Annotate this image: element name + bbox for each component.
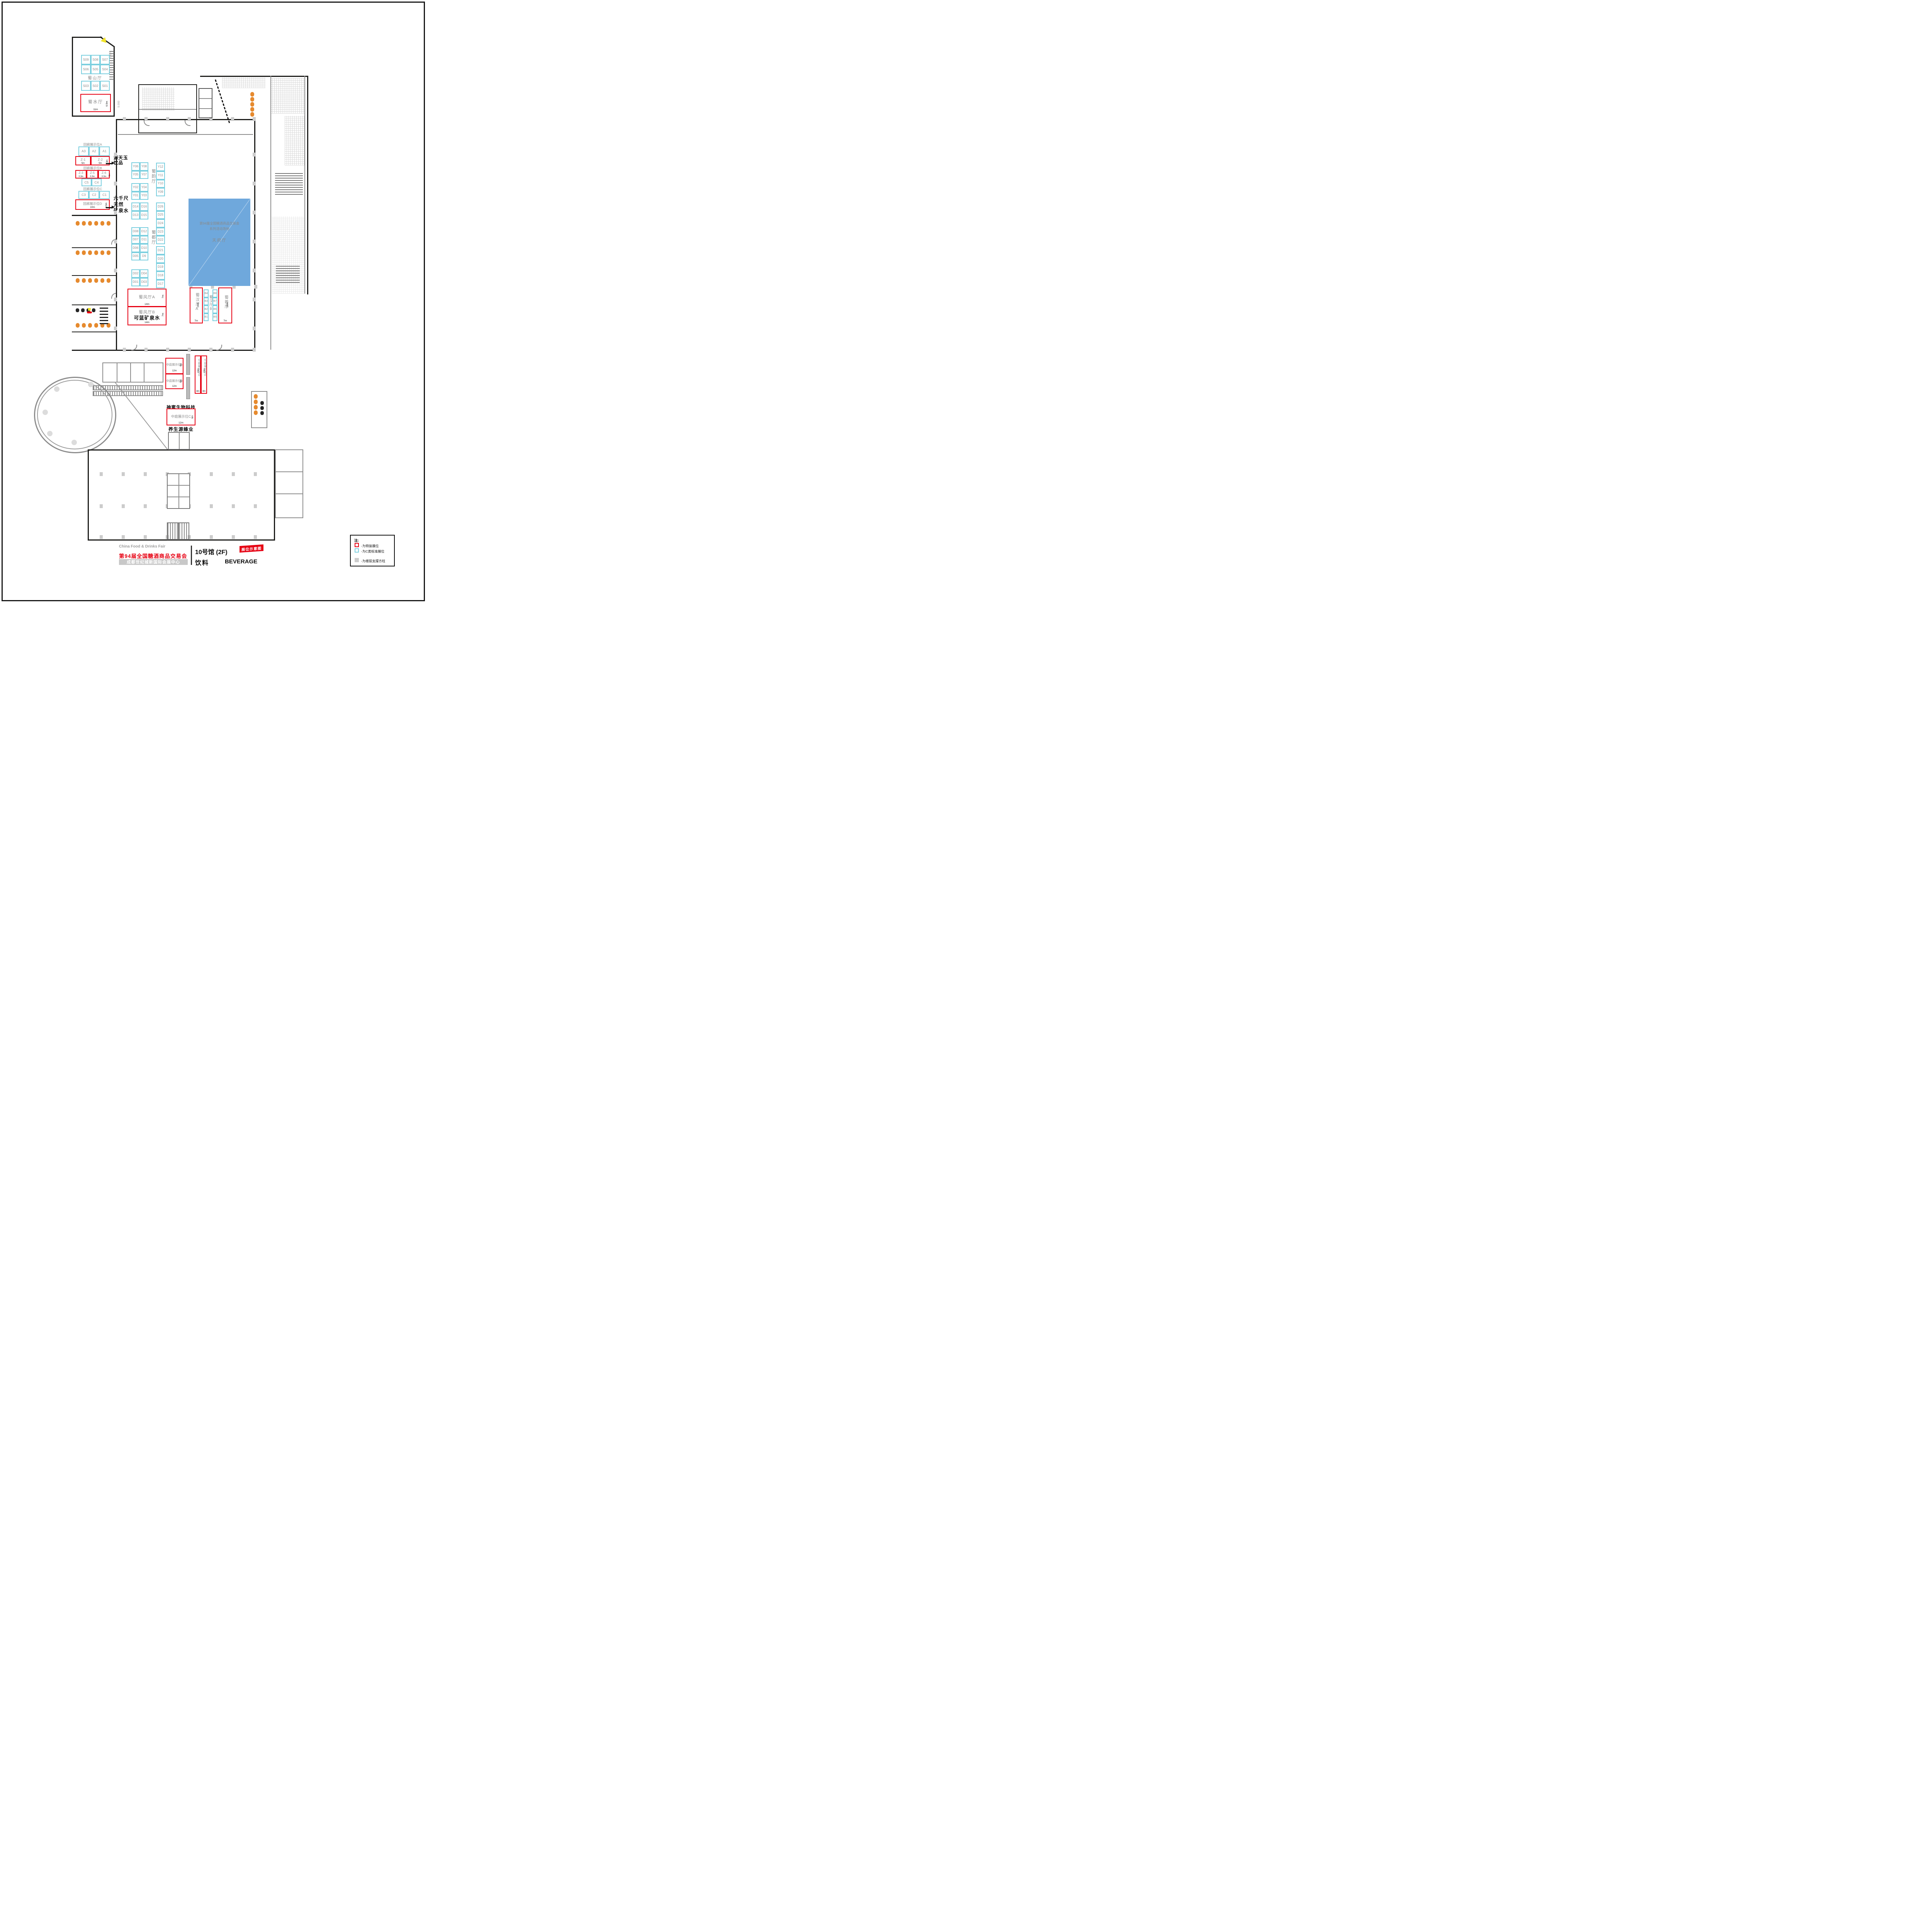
hall-corridor-line — [118, 134, 253, 135]
room-divider — [117, 363, 117, 382]
booth-S01[interactable]: S01 — [100, 81, 110, 91]
booth-B1[interactable]: B1 — [204, 313, 209, 321]
booth-D20[interactable]: D20 — [156, 255, 165, 263]
booth-D25[interactable]: D25 — [156, 211, 165, 219]
corridor-wall — [304, 76, 305, 294]
atrium-b-height: 6m — [180, 378, 182, 384]
shufeng-a-width: 14m — [128, 303, 166, 306]
fixture-icon — [88, 250, 92, 255]
z3-label: Z-3 — [76, 171, 86, 175]
arrow-icon — [106, 207, 112, 208]
fixture-icon — [100, 250, 104, 255]
booth-Z-3[interactable]: Z-3 3.3m — [75, 170, 87, 179]
fixture-icon — [94, 278, 98, 283]
corridor-rooms — [102, 362, 163, 383]
booth-shuhan-a[interactable]: 蜀汉厅A 7m 14m — [190, 287, 203, 323]
column-circle — [88, 382, 93, 387]
fixture-icon — [88, 323, 92, 328]
fixture-icon — [250, 92, 254, 97]
support-pillar-icon — [144, 472, 147, 476]
hall-wall-bottom — [72, 350, 255, 351]
booth-C5[interactable]: C5 — [82, 179, 92, 186]
venue-name: 成都世纪城新国际会展中心 — [127, 559, 180, 565]
skylight-grid — [285, 116, 305, 165]
booth-Y02[interactable]: Y02 — [131, 183, 140, 192]
corridor-d-width: 10m — [76, 206, 109, 209]
booth-D24[interactable]: D24 — [156, 219, 165, 228]
corridor-wall — [270, 76, 271, 350]
annex-rooms — [275, 449, 303, 518]
fixture-icon — [250, 97, 254, 102]
room-divider — [130, 363, 131, 382]
fixture-icon — [250, 107, 254, 112]
shuyun-booths-b: Y02Y04Y01Y03 — [131, 183, 148, 200]
fixture-icon — [260, 406, 264, 410]
booth-shufeng[interactable]: 蜀风厅A 14m 7m 蜀风厅B 可蓝矿泉水 14m 7m — [127, 289, 166, 325]
partition-stack — [100, 308, 108, 326]
shudu-booths-colbottom: D21D20D19D18D17 — [156, 246, 165, 288]
core-line — [199, 98, 212, 99]
support-pillar-icon — [114, 298, 117, 301]
booth-D22[interactable]: D22 — [156, 236, 165, 244]
booth-D10[interactable]: D10 — [140, 244, 148, 252]
fixture-icon — [100, 278, 104, 283]
z6-label: Z-6 — [99, 171, 109, 175]
booth-C1[interactable]: C1 — [99, 191, 110, 199]
support-pillar-icon — [231, 348, 234, 352]
fixture-icon — [250, 102, 254, 107]
tianfu-line2: 系列活动场地 — [189, 226, 250, 231]
fixture-icon — [82, 278, 86, 283]
booth-B2[interactable]: B2 — [204, 305, 209, 313]
booth-Y07[interactable]: Y07 — [140, 171, 148, 179]
shuyun-booths-a: Y06Y08Y05Y07 — [131, 162, 148, 179]
booth-D9[interactable]: D9 — [140, 252, 148, 261]
fixture-icon — [76, 221, 80, 226]
support-pillar-icon — [210, 535, 213, 539]
wall — [72, 275, 116, 276]
booth-C3[interactable]: C3 — [78, 191, 89, 199]
booth-B4[interactable]: B4 — [204, 289, 209, 298]
booth-shushui-hall[interactable]: 蜀水厅 11m 6.5m — [80, 94, 111, 112]
support-pillar-icon — [209, 348, 212, 352]
shufeng-a-height: 7m — [162, 293, 165, 301]
shurong-height: 14m — [226, 301, 229, 310]
fixture-icon — [100, 221, 104, 226]
booth-B5[interactable]: B5 — [212, 313, 217, 321]
fixture-icon — [107, 278, 110, 283]
support-pillar-icon — [232, 504, 235, 508]
fixture-icon — [94, 323, 98, 328]
outer-wall-right — [307, 76, 308, 294]
legend-label-standard: -为C类标准展位 — [361, 549, 384, 554]
legend: 注: -为特装展位 -为C类标准展位 -为楼层支撑方柱 — [350, 535, 395, 566]
booth-S04[interactable]: S04 — [100, 65, 110, 74]
support-pillar-icon — [188, 348, 191, 352]
z6-width: 3.3m — [99, 175, 109, 178]
support-pillar-icon — [231, 117, 234, 121]
booth-shurong[interactable]: 蜀蓉厅 7m 14m — [218, 287, 232, 323]
support-pillar-icon — [253, 348, 256, 352]
booth-D06[interactable]: D06 — [131, 244, 140, 252]
category-cn: 饮料 — [195, 558, 209, 567]
shudu-booths-b: D08D12D07D11D06D10D05D9 — [131, 227, 148, 260]
fair-name-cn: 第94届全国糖酒商品交易会 — [119, 552, 189, 560]
shuyun-booths-col: Y12Y11Y10Y09 — [156, 163, 165, 196]
support-pillar-icon — [114, 153, 117, 156]
elevator-core — [168, 432, 190, 450]
tianfu-line1: 第94届全国糖酒商品交易会 — [189, 221, 250, 226]
support-pillar-icon — [254, 504, 257, 508]
booth-D05[interactable]: D05 — [131, 252, 140, 261]
wall — [200, 76, 308, 77]
shufeng-a-label: 蜀风厅A — [128, 294, 166, 300]
wall-stub — [186, 354, 190, 375]
atrium-c-width: 12m — [167, 422, 195, 424]
support-pillar-icon — [166, 348, 169, 352]
support-pillar-icon — [122, 535, 125, 539]
booth-Y05[interactable]: Y05 — [131, 171, 140, 179]
support-pillar-icon — [114, 269, 117, 272]
shurong-width: 7m — [219, 320, 231, 322]
booth-D26[interactable]: D26 — [156, 202, 165, 211]
fixture-icon — [76, 278, 80, 283]
column-circle — [47, 431, 53, 436]
brand-yangshengyuan: 养生源蜂业 — [165, 426, 197, 432]
fixture-yellow — [88, 308, 91, 311]
booth-atrium-d[interactable]: 中庭展示位D 4m — [195, 355, 201, 394]
support-pillar-icon — [122, 472, 125, 476]
support-pillar-icon — [253, 182, 256, 185]
z6-height: 3m — [109, 172, 111, 178]
atrium-a-height: 6m — [180, 362, 182, 368]
room-divider — [276, 493, 302, 494]
legend-swatch-pillar — [355, 558, 359, 562]
fixture-icon — [76, 323, 80, 328]
shufeng-b-height: 7m — [162, 311, 165, 319]
support-pillar-icon — [253, 117, 256, 121]
booth-atrium-ab[interactable]: 中庭展示位A 12m 6m 中庭展示位B 12m 6m — [165, 358, 183, 389]
skylight-grid — [270, 78, 304, 114]
support-pillar-icon — [114, 240, 117, 243]
support-pillar-icon — [232, 535, 235, 539]
fixture-icon — [82, 323, 86, 328]
shuhan-a-width: 7m — [190, 320, 202, 322]
booth-D12[interactable]: D12 — [140, 227, 148, 236]
fair-name-en: China Food & Drinks Fair — [119, 544, 189, 549]
booth-D13[interactable]: D13 — [131, 211, 140, 219]
booth-D23[interactable]: D23 — [156, 228, 165, 236]
booth-Y04[interactable]: Y04 — [140, 183, 148, 192]
booth-A3[interactable]: A3 — [78, 146, 89, 156]
stair-divider — [178, 523, 179, 539]
support-pillar-icon — [100, 472, 103, 476]
corridor-d-height: 3.5m — [105, 201, 108, 209]
shudu-hall-label: 蜀都厅 — [150, 230, 156, 245]
wall — [72, 215, 116, 216]
support-pillar-icon — [253, 298, 256, 301]
support-pillar-icon — [123, 117, 126, 121]
booth-B8[interactable]: B8 — [212, 289, 217, 298]
booth-D11[interactable]: D11 — [140, 236, 148, 244]
support-pillar-icon — [144, 504, 147, 508]
stairs-icon — [276, 266, 300, 284]
booth-D15[interactable]: D15 — [140, 211, 148, 219]
booth-atrium-e[interactable]: 中庭展示位E 4m — [201, 355, 207, 394]
elevator-core — [251, 391, 267, 428]
corridor-b-booths: C5C4 — [82, 179, 102, 186]
support-pillar-icon — [114, 327, 117, 330]
atrium-c-label: 中庭展示位C — [167, 414, 195, 419]
fixture-icon — [94, 221, 98, 226]
fixture-icon — [88, 221, 92, 226]
shudu-booths-coltop: D26D25D24D23D22 — [156, 202, 165, 244]
wall — [72, 37, 73, 117]
booth-Y08[interactable]: Y08 — [140, 162, 148, 171]
booth-Y11[interactable]: Y11 — [156, 171, 165, 180]
booth-corridor-d[interactable]: 回廊展示位D 10m 3.5m — [75, 199, 110, 210]
booth-S07[interactable]: S07 — [100, 55, 110, 65]
legend-label-pillar: -为楼层支撑方柱 — [361, 559, 385, 563]
atrium-divider — [166, 373, 183, 374]
support-pillar-icon — [144, 348, 148, 352]
fixture-icon — [107, 250, 110, 255]
booth-D02[interactable]: D02 — [131, 269, 140, 278]
shuhan-b-booths-left: B4B3B2B1 — [204, 289, 209, 321]
room-divider — [276, 471, 302, 472]
booth-S03[interactable]: S03 — [81, 81, 91, 91]
booth-B3[interactable]: B3 — [204, 298, 209, 306]
shufeng-b-width: 14m — [128, 321, 166, 324]
booth-D18[interactable]: D18 — [156, 271, 165, 280]
booth-D19[interactable]: D19 — [156, 263, 165, 272]
elevator-core — [167, 473, 190, 509]
stairs-icon — [167, 522, 189, 540]
atrium-e-height: 15m — [204, 367, 206, 374]
wall — [72, 247, 116, 248]
fixture-red — [87, 311, 92, 313]
booth-Y10[interactable]: Y10 — [156, 180, 165, 188]
skylight-grid — [222, 77, 265, 88]
wall — [72, 37, 102, 38]
tianfu-name: 天府厅 — [189, 237, 250, 243]
hall-number: 10号馆 (2F) — [195, 547, 228, 556]
tianfu-activity-area[interactable]: 第94届全国糖酒商品交易会 系列活动场地 天府厅 — [189, 199, 250, 286]
support-pillar-icon — [144, 535, 147, 539]
booth-S08[interactable]: S08 — [91, 55, 100, 65]
booth-B7[interactable]: B7 — [212, 298, 217, 306]
booth-C4[interactable]: C4 — [92, 179, 102, 186]
booth-Z-1[interactable]: Z-1 5m — [75, 156, 91, 165]
booth-D21[interactable]: D21 — [156, 246, 165, 255]
column-circle — [42, 410, 48, 415]
booth-D16[interactable]: D16 — [140, 202, 148, 211]
z1-label: Z-1 — [76, 158, 90, 162]
shudu-booths-c: D02D04D01D03 — [131, 269, 148, 286]
booth-S02[interactable]: S02 — [91, 81, 100, 91]
legend-note: 注: — [354, 538, 359, 543]
wall — [72, 304, 116, 305]
arrow-icon — [106, 163, 112, 164]
elevation-marker: 9.000 — [118, 97, 121, 112]
wall — [72, 116, 115, 117]
fixture-icon — [88, 278, 92, 283]
atrium-d-height: 15m — [197, 367, 200, 374]
booth-D07[interactable]: D07 — [131, 236, 140, 244]
shuhan-b-booths-right: B8B7B6B5 — [212, 289, 217, 321]
core-line — [178, 474, 179, 508]
fixture-icon — [260, 411, 264, 415]
booth-Y12[interactable]: Y12 — [156, 163, 165, 171]
room-grid — [142, 87, 175, 111]
atrium-d-width: 4m — [195, 390, 200, 393]
z1-width: 5m — [76, 162, 90, 165]
support-pillar-icon — [253, 327, 256, 330]
support-pillar-icon — [254, 535, 257, 539]
core-line — [199, 108, 212, 109]
z3-width: 3.3m — [76, 175, 86, 178]
support-pillar-icon — [254, 285, 257, 289]
shushan-hall-label: 蜀山厅 — [76, 75, 114, 80]
stairs-icon — [275, 173, 303, 196]
shudu-booths-a: D14D16D13D15 — [131, 202, 148, 219]
booth-D01[interactable]: D01 — [131, 278, 140, 286]
booth-D08[interactable]: D08 — [131, 227, 140, 236]
elevator-core — [199, 88, 212, 118]
booth-A1[interactable]: A1 — [99, 146, 110, 156]
booth-Z-6[interactable]: Z-6 3.3m 3m — [98, 170, 110, 179]
support-pillar-icon — [100, 504, 103, 508]
fixture-icon — [107, 221, 110, 226]
room-divider — [144, 363, 144, 382]
support-pillar-icon — [210, 504, 213, 508]
corridor-c-booths: C3C2C1 — [78, 191, 110, 199]
wall-stub — [186, 377, 190, 399]
support-pillar-icon — [253, 269, 256, 272]
legend-label-special: -为特装展位 — [361, 544, 379, 548]
footer-divider — [191, 546, 192, 565]
floor-plan: 8.000 S09S08S07S06S05S04 蜀山厅 S03S02S01 蜀… — [0, 0, 426, 603]
fixture-icon — [82, 250, 86, 255]
booth-S05[interactable]: S05 — [91, 65, 100, 74]
atrium-e-width: 4m — [202, 390, 206, 393]
legend-swatch-standard — [355, 548, 359, 553]
fixture-icon — [92, 308, 95, 312]
booth-C2[interactable]: C2 — [89, 191, 99, 199]
shuhan-a-height: 14m — [197, 301, 200, 310]
fixture-icon — [260, 401, 264, 405]
shushan-booths-bottom: S03S02S01 — [81, 81, 110, 91]
badge-text: 展位示意图 — [241, 545, 262, 552]
fixture-icon — [254, 410, 258, 415]
venue-bar: 成都世纪城新国际会展中心 — [119, 559, 188, 565]
support-pillar-icon — [253, 211, 256, 214]
atrium-ellipse-inner — [37, 380, 112, 449]
booth-B6[interactable]: B6 — [212, 305, 217, 313]
support-pillar-icon — [254, 472, 257, 476]
fixture-icon — [76, 250, 80, 255]
fixture-icon — [254, 405, 258, 410]
support-pillar-icon — [210, 472, 213, 476]
booth-D14[interactable]: D14 — [131, 202, 140, 211]
shufeng-divider — [128, 306, 166, 307]
atrium-b-width: 12m — [166, 385, 183, 388]
booth-S06[interactable]: S06 — [81, 65, 91, 74]
column-circle — [54, 386, 59, 392]
booth-Y09[interactable]: Y09 — [156, 188, 165, 196]
core-line — [179, 433, 180, 449]
fixture-icon — [254, 394, 258, 399]
z5-label: Z-5 — [87, 171, 97, 175]
support-pillar-icon — [232, 472, 235, 476]
booth-A2[interactable]: A2 — [89, 146, 99, 156]
corridor-d-label: 回廊展示位D — [76, 201, 109, 206]
atrium-a-width: 12m — [166, 370, 183, 372]
corridor-a-booths: A3A2A1 — [78, 146, 110, 156]
booth-D03[interactable]: D03 — [140, 278, 148, 286]
booth-Y03[interactable]: Y03 — [140, 192, 148, 200]
column-circle — [71, 440, 77, 445]
booth-Y06[interactable]: Y06 — [131, 162, 140, 171]
fixture-icon — [94, 250, 98, 255]
fixture-icon — [76, 308, 79, 312]
atrium-c-height: 6m — [192, 414, 194, 420]
support-pillar-icon — [100, 535, 103, 539]
shushui-height: 6.5m — [106, 98, 109, 110]
support-pillar-icon — [253, 153, 256, 156]
booth-atrium-c[interactable]: 中庭展示位C 12m 6m — [166, 408, 195, 425]
room-divider — [139, 109, 196, 110]
wall — [72, 332, 116, 332]
booth-D17[interactable]: D17 — [156, 280, 165, 288]
fixture-icon — [254, 400, 258, 404]
support-pillar-icon — [123, 348, 126, 352]
shuyun-hall-label: 蜀韵厅 — [150, 169, 156, 184]
fixture-icon — [250, 112, 254, 117]
support-pillar-icon — [122, 504, 125, 508]
category-en: BEVERAGE — [225, 558, 257, 565]
hall2-wall-left — [88, 449, 89, 541]
shufeng-b-brand: 可蓝矿泉水 — [128, 314, 166, 321]
booth-D04[interactable]: D04 — [140, 269, 148, 278]
fixture-icon — [81, 308, 85, 312]
booth-Y01[interactable]: Y01 — [131, 192, 140, 200]
support-pillar-icon — [253, 240, 256, 243]
z5-width: 3.3m — [87, 175, 97, 178]
booth-Z-5[interactable]: Z-5 3.3m — [87, 170, 98, 179]
fixture-icon — [82, 221, 86, 226]
shushan-booths-top: S09S08S07S06S05S04 — [81, 55, 110, 74]
booth-S09[interactable]: S09 — [81, 55, 91, 65]
support-pillar-icon — [114, 211, 117, 214]
support-pillar-icon — [114, 182, 117, 185]
legend-swatch-special — [355, 543, 359, 547]
